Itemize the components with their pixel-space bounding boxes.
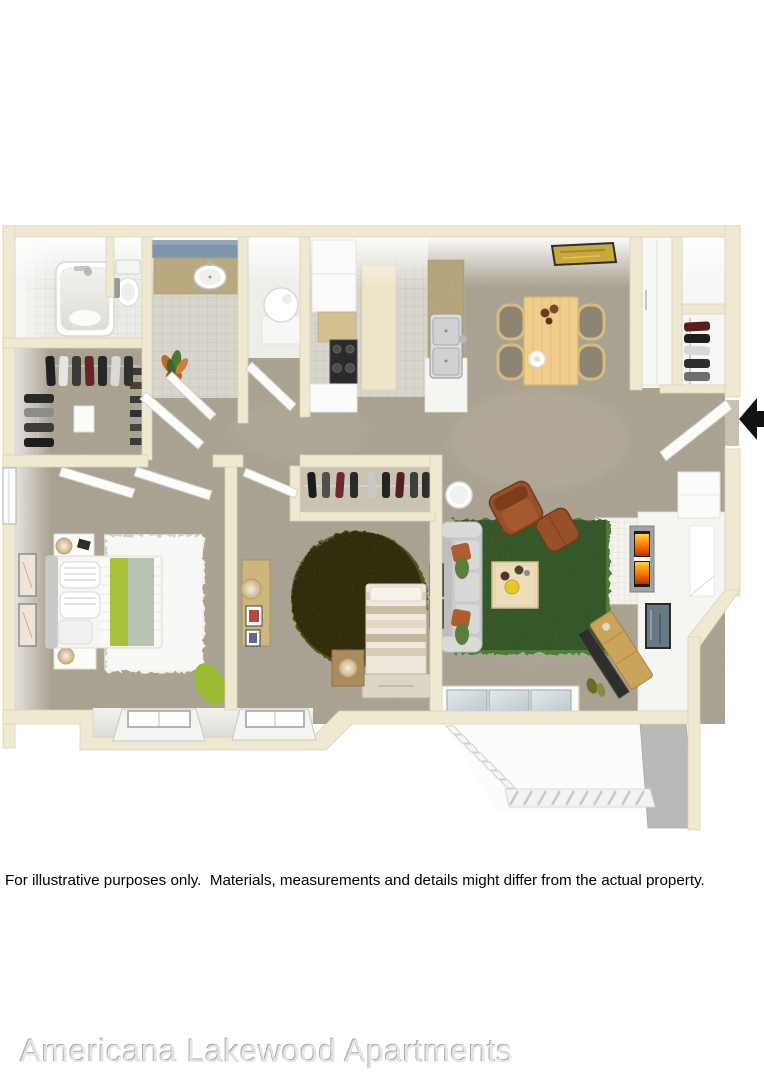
wall-bedrooms-top-c (300, 455, 440, 467)
table-lamp (58, 648, 74, 664)
master-bed (46, 556, 162, 648)
bar-faucet (459, 335, 467, 343)
bedroom2-window (232, 709, 316, 740)
floor-plan-rendering (0, 225, 764, 845)
wall-bedrooms-top-b (213, 455, 243, 467)
wall-utility-kitchen (300, 237, 310, 417)
fireplace (630, 526, 654, 592)
sofa-plant (455, 557, 469, 579)
coffee-table (492, 562, 538, 608)
vanity-sink (154, 258, 238, 294)
table-lamp (56, 538, 72, 554)
wall-bedroom2-living (430, 455, 442, 711)
table-bowl (541, 309, 550, 318)
coat-closet-shelf (682, 304, 725, 314)
wall-bath2-utility (238, 237, 248, 423)
bedroom1-window (113, 709, 205, 741)
headboard (46, 556, 58, 648)
wall-closet-east (142, 237, 152, 460)
dining-table (524, 297, 578, 385)
bathtub (56, 262, 114, 336)
pillow (58, 620, 92, 644)
entry-arrow-icon (739, 398, 764, 440)
nightstand (54, 534, 94, 558)
pillow (60, 562, 100, 588)
wall-dining-pantry (630, 237, 642, 390)
dining-wall-art (552, 243, 616, 265)
coat-closet (684, 318, 710, 384)
patio-privacy-wall (640, 723, 694, 828)
closet-dresser (74, 406, 94, 432)
wall-right-upper (725, 225, 740, 397)
double-sink (430, 314, 467, 378)
disclaimer-text: For illustrative purposes only. Material… (5, 872, 705, 889)
yellow-plate (505, 580, 519, 594)
wall-top (3, 225, 740, 237)
wall-entry-closet-bottom (660, 385, 725, 393)
bedroom2-bed (362, 584, 430, 698)
wall-right-mid (725, 449, 740, 596)
sage-blanket (128, 558, 154, 646)
utility-closet (262, 288, 302, 344)
pillow (370, 587, 422, 601)
pillow (60, 592, 100, 618)
wall-bedrooms-top-a (3, 455, 148, 467)
table-lamp (339, 659, 357, 677)
wall-toilet-nook (106, 237, 114, 297)
refrigerator (312, 240, 356, 312)
watermark-title: Americana Lakewood Apartments (20, 1033, 513, 1070)
wall-bedroom2-closet-front (296, 512, 435, 521)
desk (241, 560, 270, 646)
desk-lamp (241, 579, 261, 599)
wall-right-lower (688, 637, 700, 830)
wall-pantry-closet (672, 237, 682, 387)
green-throw (110, 558, 128, 646)
entry-bench (678, 472, 720, 518)
sofa (440, 522, 482, 652)
patio-railing-front (505, 789, 655, 807)
kitchen-counter (318, 312, 356, 342)
water-heater (264, 288, 298, 322)
wall-bedroom-divider (225, 467, 237, 710)
master-bedroom-side-window (3, 468, 16, 524)
living-room-wall-art (646, 604, 670, 648)
wall-bath-closet-divider (3, 338, 148, 348)
stove (330, 340, 357, 384)
lower-cabinet (310, 384, 357, 412)
sink-faucet (207, 260, 213, 266)
nightstand-cube (332, 650, 364, 686)
page: For illustrative purposes only. Material… (0, 0, 764, 1080)
fireplace-flames (635, 534, 649, 556)
patio (443, 723, 694, 828)
bedroom2-closet (300, 466, 435, 512)
